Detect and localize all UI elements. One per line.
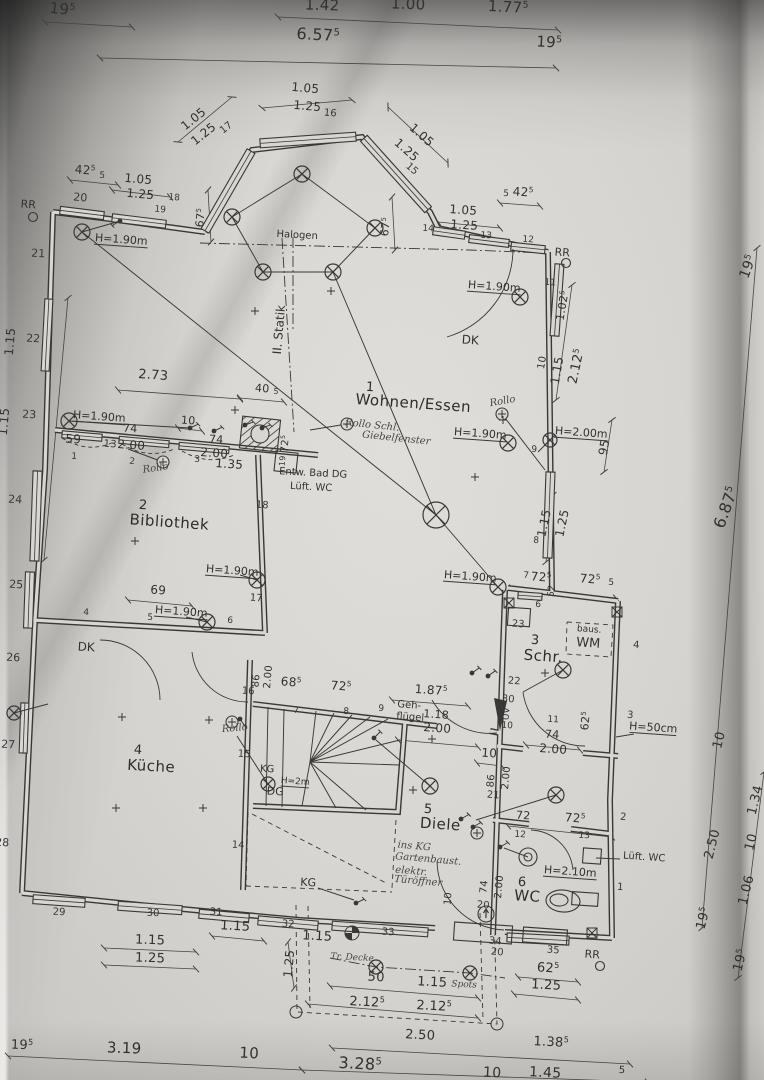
dimension-label: 2.125 xyxy=(349,994,385,1011)
wall-number: 18 xyxy=(255,500,268,512)
dimension-label: 2.00 xyxy=(493,875,506,899)
rain-pipe-icon xyxy=(29,213,38,222)
dimension-label: 1.25 xyxy=(450,217,479,233)
dimension-label: 40 xyxy=(255,382,270,396)
dimension-line xyxy=(240,398,284,402)
wall-number: 16 xyxy=(241,686,254,698)
wall-number: 15 xyxy=(237,749,250,761)
plan-note: UV xyxy=(501,706,512,720)
height-note: H=1.90m xyxy=(444,568,497,585)
window xyxy=(518,592,542,601)
room-name: WC xyxy=(514,886,542,906)
dimension-label: 52 xyxy=(547,584,558,597)
wall-number: 33 xyxy=(381,927,394,939)
dimension-label: 1.06 xyxy=(736,874,758,907)
height-note: H=1.90m xyxy=(95,231,148,248)
wall-number: 25 xyxy=(9,578,24,592)
wall-number: 20 xyxy=(490,947,503,959)
wall-core xyxy=(253,722,405,812)
dimension-label: 1.05 xyxy=(449,202,478,218)
dimension-label: 1.25 xyxy=(135,950,166,966)
wire-line xyxy=(310,762,399,765)
handwritten-note: Rollo xyxy=(141,461,169,476)
dimension-label: 72 xyxy=(516,809,531,823)
dimension-label: 1.875 xyxy=(414,682,448,698)
wall-number: 1 xyxy=(71,452,77,462)
dimension-label: 50 xyxy=(367,970,385,986)
dimension-label: 625 xyxy=(578,711,593,731)
dimension-line xyxy=(212,936,264,941)
dimension-label: 2.73 xyxy=(138,367,169,384)
wall-number: 22 xyxy=(507,676,520,688)
wall-number: 30 xyxy=(147,908,160,919)
dimension-label: 1.15 xyxy=(302,928,333,945)
wall-number: 5 xyxy=(99,171,105,181)
dimension-label: 1.25 xyxy=(126,186,155,202)
dimension-label: 3.19 xyxy=(107,1038,142,1057)
dimension-label: 1.25 xyxy=(552,508,571,538)
dimension-label: 74 xyxy=(478,880,490,894)
wall-number: 9 xyxy=(531,445,538,455)
reference-cross xyxy=(428,735,436,743)
dimension-label: 2.00 xyxy=(117,437,146,453)
handwritten-note: Tr. Decke xyxy=(330,952,374,964)
dimension-label: 10 xyxy=(742,832,761,852)
dimension-label: 10 xyxy=(181,414,196,428)
dimension-label: 1.05 xyxy=(124,171,153,187)
height-note: H=2.00m xyxy=(555,424,608,441)
wall-number: 11 xyxy=(544,278,556,289)
wall-number: 27 xyxy=(1,738,16,752)
dimension-line xyxy=(514,994,578,1000)
wall-number: 9 xyxy=(378,704,385,714)
plan-note: flügel xyxy=(396,711,425,724)
floor-plan-drawing: 1951.421.001.7756.5751951.051.251.051.25… xyxy=(0,0,764,1080)
dimension-line xyxy=(118,390,240,399)
switch-icon xyxy=(498,841,510,850)
dimension-label: 195 xyxy=(11,1037,34,1053)
rain-pipe-icon xyxy=(562,259,571,268)
wall-number: 30 xyxy=(501,694,514,706)
wall-number: 26 xyxy=(6,651,21,665)
dimension-label: 1.15 xyxy=(2,327,18,356)
dimension-label: 2.00 xyxy=(262,665,275,689)
wall-number: 18 xyxy=(168,193,181,204)
dimension-line xyxy=(392,197,395,250)
dimension-label: 725 xyxy=(579,571,601,587)
wall-number: 28 xyxy=(0,836,10,850)
dimension-label: 59 xyxy=(65,431,82,446)
plan-note: RR xyxy=(584,947,601,961)
door-swing-arc xyxy=(192,652,248,702)
door-swing-arc xyxy=(100,640,160,700)
reference-cross xyxy=(118,713,126,721)
fixture xyxy=(239,416,280,452)
height-note: H=1.90m xyxy=(73,408,126,425)
wall-number: 23 xyxy=(22,408,37,422)
survey-point-icon xyxy=(345,926,359,940)
wall-number: 11 xyxy=(547,715,559,726)
wall-number: 2 xyxy=(620,812,627,823)
dimension-line xyxy=(702,248,757,928)
switch-icon xyxy=(470,666,482,676)
wall-number: 13 xyxy=(480,231,492,242)
wall-number: 2 xyxy=(129,457,135,467)
reference-cross xyxy=(327,287,335,295)
wall-number: 8 xyxy=(533,536,540,546)
dimension-label: 74 xyxy=(209,433,224,447)
room-name: Wohnen/Essen xyxy=(355,390,472,416)
scanned-floor-plan-page: { "document": { "type": "architectural f… xyxy=(0,0,764,1080)
height-note: H=1.90m xyxy=(155,603,208,620)
handwritten-note: Rollo xyxy=(488,394,516,410)
dimension-label: 725 xyxy=(279,435,292,454)
dimension-line xyxy=(500,203,540,206)
dimension-label: 1.05 xyxy=(291,80,320,96)
dimension-label: 2.50 xyxy=(405,1027,436,1044)
dimension-label: 675 xyxy=(378,216,393,237)
switch-icon xyxy=(372,730,383,741)
wall-number: 6 xyxy=(535,600,542,610)
height-note: H=2.10m xyxy=(544,863,597,880)
dimension-tick xyxy=(228,97,237,98)
dimension-label: 1.25 xyxy=(293,98,322,114)
wall-number: 1 xyxy=(617,882,624,893)
plan-note: DG xyxy=(266,785,284,799)
dimension-label: 1.775 xyxy=(487,0,529,17)
wall-number: 7 xyxy=(293,706,299,716)
dimension-line xyxy=(100,58,556,68)
switch-icon xyxy=(486,669,498,679)
plan-note: Entw. Bad DG xyxy=(279,466,348,481)
dimension-label: 1.15 xyxy=(417,974,448,991)
plan-note: RR xyxy=(554,245,571,259)
dashed-line xyxy=(480,913,483,1020)
plan-note: KG xyxy=(300,876,316,890)
ceiling-lamp-icon xyxy=(423,502,449,528)
reference-cross xyxy=(199,804,207,812)
dimension-label: 3.285 xyxy=(338,1053,382,1074)
wall-number: 19 xyxy=(154,205,167,216)
dimension-label: 2.125 xyxy=(416,998,452,1015)
dimension-label: 10 xyxy=(239,1044,260,1063)
dimension-label: 10 xyxy=(481,745,498,760)
plan-note: Geh- xyxy=(397,699,422,712)
wall-number: 10 xyxy=(442,892,454,906)
dimension-label: 195 xyxy=(536,32,563,51)
plan-note: Lüft. WC xyxy=(623,851,666,865)
wall-number: 32 xyxy=(281,919,294,931)
wire-line xyxy=(310,740,400,762)
reference-cross xyxy=(112,804,120,812)
dimension-label: 425 xyxy=(74,162,96,178)
fixture xyxy=(582,848,601,864)
dimension-label: 13 xyxy=(103,439,117,451)
dimension-label: 86 xyxy=(485,774,497,788)
wall-number: 10 xyxy=(501,721,513,732)
height-note: H=1.90m xyxy=(454,425,507,442)
wall-number: 13 xyxy=(578,831,590,842)
switch-icon xyxy=(354,897,367,905)
height-note: H=1.90m xyxy=(206,562,259,579)
reference-cross xyxy=(205,716,213,724)
dimension-label: 1.25 xyxy=(531,977,562,994)
dimension-label: 1.35 xyxy=(215,456,244,472)
rollo-motor-icon xyxy=(496,408,508,420)
dimension-label: 725 xyxy=(564,810,586,826)
wall-number: 5 xyxy=(608,578,614,588)
dimension-label: 1.15 xyxy=(135,932,166,948)
wall-number: 8 xyxy=(343,707,350,717)
wall-number: 29 xyxy=(53,907,66,918)
dimension-label: 2.50 xyxy=(702,828,724,861)
ceiling-lamp-icon xyxy=(294,166,310,182)
wall-number: 22 xyxy=(26,332,41,346)
wall xyxy=(253,722,405,812)
wire-line xyxy=(237,736,268,784)
toilet-icon xyxy=(550,893,569,906)
wall-number: 3 xyxy=(194,455,200,465)
wall-number: 15 xyxy=(403,161,420,178)
dimension-label: 425 xyxy=(512,184,534,199)
wall-number: 12 xyxy=(522,235,534,246)
height-note: H=1.90m xyxy=(468,278,521,295)
wire-line xyxy=(616,734,634,737)
handwritten-note: Giebelfenster xyxy=(362,429,433,447)
handwritten-note: Türöffner xyxy=(394,874,444,889)
dimension-label: 195 xyxy=(49,0,77,19)
wall-number: 24 xyxy=(8,493,23,507)
wall-number: 4 xyxy=(633,640,640,651)
dimension-label: 10 xyxy=(483,1065,502,1080)
reference-cross xyxy=(231,406,239,414)
wire-line xyxy=(310,711,316,762)
wall-number: 4 xyxy=(83,608,90,618)
ceiling-lamp-icon xyxy=(224,209,240,225)
window xyxy=(24,572,35,628)
reference-cross xyxy=(471,473,479,481)
dimension-label: 625 xyxy=(537,960,560,977)
room-name: Schr. xyxy=(523,646,564,667)
reference-cross xyxy=(131,537,139,545)
plan-note: WM xyxy=(576,635,601,652)
wire-line xyxy=(310,762,366,810)
wire-line xyxy=(310,762,336,808)
wire-line xyxy=(596,858,620,859)
plan-note: baus. xyxy=(577,624,602,636)
dimension-label: 19 xyxy=(278,455,288,467)
wire-line xyxy=(310,715,352,762)
plan-note: KG xyxy=(260,764,275,776)
room-name: Bibliothek xyxy=(129,510,210,534)
dimension-label: 1.45 xyxy=(529,1064,562,1080)
wall-number: 7 xyxy=(523,571,529,581)
dimension-label: 1.00 xyxy=(391,0,426,14)
dimension-label: 74 xyxy=(545,728,560,742)
wall-number: 20 xyxy=(476,900,489,912)
wall-number: 14 xyxy=(422,224,434,235)
plan-note: DK xyxy=(77,640,96,655)
plan-note: RR xyxy=(20,197,37,211)
dimension-label: 1.42 xyxy=(305,0,340,15)
wall-number: 16 xyxy=(323,107,337,119)
dimension-label: 10 xyxy=(710,730,729,750)
dashed-line xyxy=(252,814,388,884)
wire-line xyxy=(232,174,375,272)
dimension-label: 195 xyxy=(693,905,714,931)
dimension-label: 195 xyxy=(730,947,751,973)
wire-line xyxy=(310,713,334,762)
wall-number: 21 xyxy=(486,790,499,802)
dimension-line xyxy=(398,740,478,747)
ceiling-lamp-icon xyxy=(74,224,90,240)
dimension-label: 2.125 xyxy=(565,347,588,385)
wall-number: 20 xyxy=(73,190,88,204)
dimension-label: 69 xyxy=(150,582,167,597)
ceiling-lamp-icon xyxy=(422,778,438,794)
fixture xyxy=(453,922,512,944)
dimension-label: 725 xyxy=(330,678,352,694)
wall-number: 35 xyxy=(546,945,559,957)
plan-note: Halogen xyxy=(276,229,318,242)
handwritten-note: Spots xyxy=(451,979,477,990)
dimension-label: 1.25 xyxy=(281,949,297,978)
wall-number: 23 xyxy=(511,619,524,631)
dimension-label: 1.385 xyxy=(533,1034,569,1051)
dimension-label: 685 xyxy=(280,674,302,690)
wall-number: 5 xyxy=(503,189,509,199)
wall-number: 21 xyxy=(31,247,46,261)
room-name: Küche xyxy=(127,756,176,776)
wall-number: 17 xyxy=(218,120,235,137)
dimension-label: 2.00 xyxy=(500,766,513,790)
plan-note: Lüft. WC xyxy=(290,481,333,494)
rain-pipe-icon xyxy=(596,962,605,971)
wall-number: 14 xyxy=(231,840,244,852)
dimension-label: 1.34 xyxy=(745,784,764,817)
dimension-tick xyxy=(174,142,183,143)
room-name: Diele xyxy=(419,814,461,835)
dimension-label: 5 xyxy=(619,1065,626,1076)
dimension-label: 2.00 xyxy=(539,741,568,757)
dashed-line xyxy=(246,886,392,892)
dimension-line xyxy=(308,1004,478,1018)
dimension-lines xyxy=(5,14,764,1080)
reference-cross xyxy=(541,669,549,677)
handwritten-note: Rollo xyxy=(220,722,248,735)
dimension-label: 5 xyxy=(273,387,279,396)
ceiling-lamp-icon xyxy=(7,706,21,720)
wall-number: 31 xyxy=(209,907,222,919)
reference-cross xyxy=(251,307,259,315)
dimension-label: 2.00 xyxy=(423,720,452,736)
dimension-line xyxy=(45,22,132,27)
dimension-label: 1.15 xyxy=(220,918,251,935)
dimension-label: 6.575 xyxy=(296,24,340,45)
wall-number: 6 xyxy=(227,616,234,626)
dimension-label: 1.15 xyxy=(0,407,12,436)
wall-number: 12 xyxy=(514,830,526,841)
ceiling-lamp-icon xyxy=(548,787,564,803)
wall-number: 17 xyxy=(249,593,262,605)
dimension-label: 675 xyxy=(193,207,208,228)
dimension-label: 10 xyxy=(536,355,549,370)
plan-note: DK xyxy=(461,332,480,347)
wall-number: 5 xyxy=(147,613,153,623)
reference-cross xyxy=(409,786,417,794)
dimension-line xyxy=(70,180,118,185)
wire-line xyxy=(310,717,370,762)
plan-note: II. Statik xyxy=(270,304,288,354)
